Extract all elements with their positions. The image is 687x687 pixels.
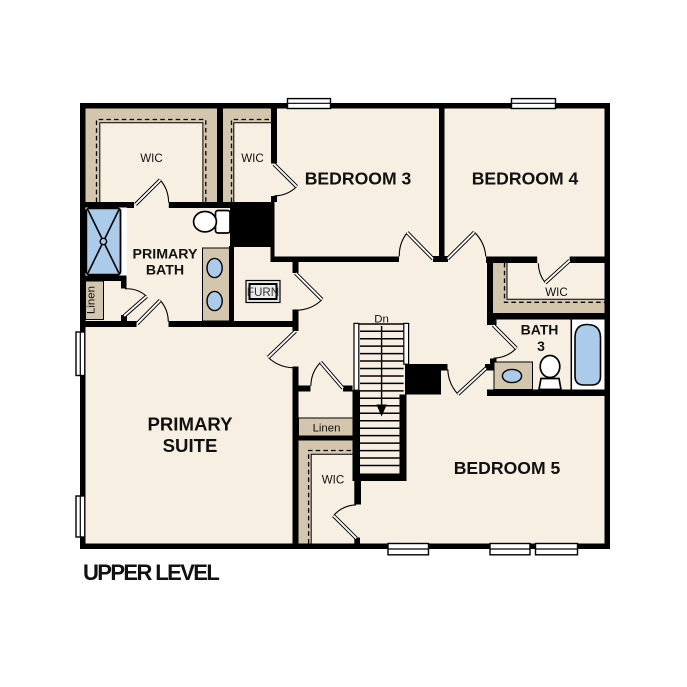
- svg-text:PRIMARY: PRIMARY: [133, 246, 198, 262]
- svg-text:BEDROOM 4: BEDROOM 4: [472, 169, 579, 189]
- svg-text:Dn: Dn: [374, 313, 389, 325]
- svg-text:WIC: WIC: [545, 286, 568, 299]
- svg-text:WIC: WIC: [322, 474, 345, 487]
- svg-text:UPPER LEVEL: UPPER LEVEL: [83, 560, 219, 585]
- svg-text:Linen: Linen: [85, 286, 97, 314]
- svg-text:FURN: FURN: [247, 286, 279, 299]
- svg-text:WIC: WIC: [140, 152, 163, 165]
- svg-text:WIC: WIC: [241, 152, 264, 165]
- svg-text:PRIMARY: PRIMARY: [147, 413, 233, 434]
- svg-text:SUITE: SUITE: [163, 435, 218, 456]
- svg-text:BATH: BATH: [146, 263, 184, 279]
- svg-text:Linen: Linen: [313, 423, 341, 435]
- svg-text:BATH: BATH: [521, 322, 559, 338]
- svg-text:BEDROOM 5: BEDROOM 5: [454, 458, 561, 478]
- svg-text:BEDROOM 3: BEDROOM 3: [305, 169, 412, 189]
- svg-text:3: 3: [537, 338, 545, 354]
